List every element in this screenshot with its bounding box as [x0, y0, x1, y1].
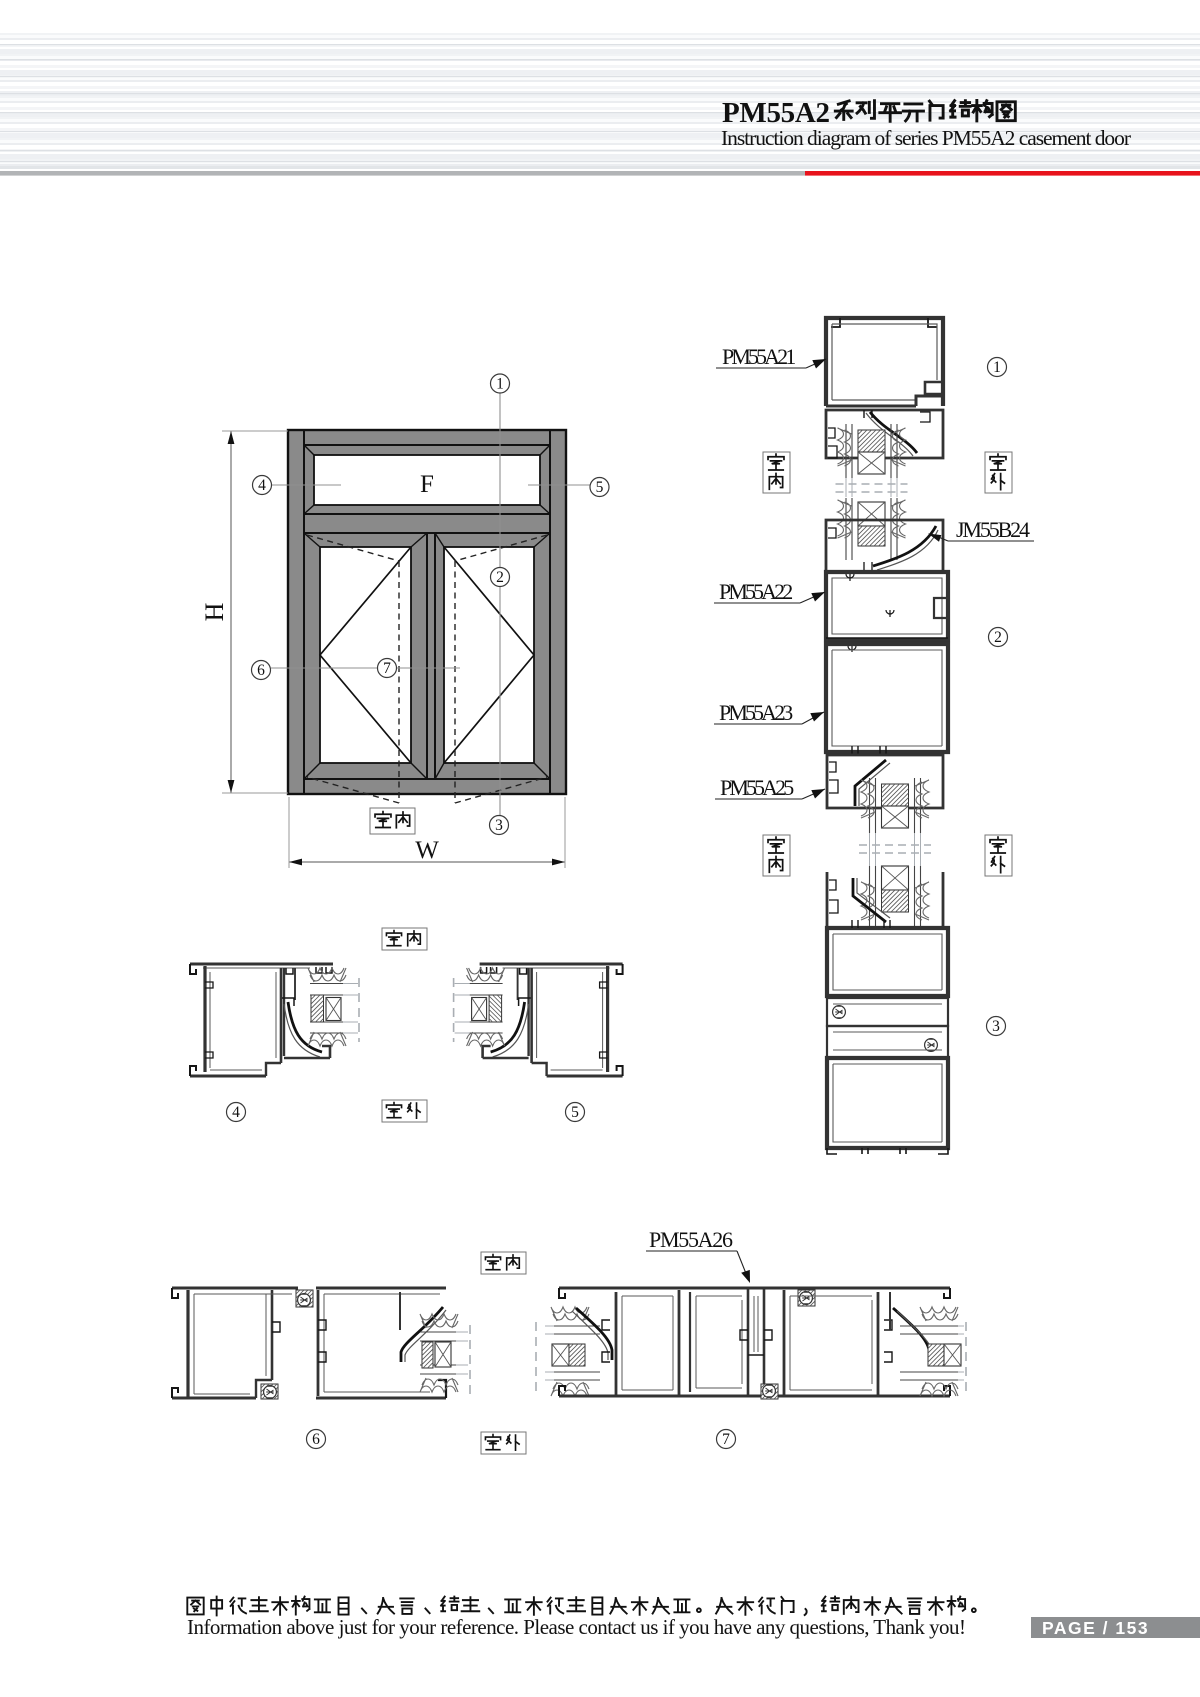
svg-text:PM55A23: PM55A23 — [719, 700, 793, 725]
svg-text:Information above just for you: Information above just for your referenc… — [187, 1615, 966, 1639]
svg-text:PAGE / 153: PAGE / 153 — [1042, 1618, 1149, 1638]
svg-text:PM55A25: PM55A25 — [720, 775, 794, 800]
svg-text:2: 2 — [994, 629, 1002, 646]
svg-text:F: F — [420, 471, 434, 498]
svg-text:JM55B24: JM55B24 — [956, 517, 1030, 542]
svg-text:4: 4 — [258, 477, 266, 494]
svg-text:PM55A26: PM55A26 — [649, 1227, 733, 1252]
svg-text:3: 3 — [992, 1018, 1000, 1035]
svg-text:5: 5 — [571, 1104, 579, 1121]
svg-text:PM55A21: PM55A21 — [722, 344, 796, 369]
svg-text:6: 6 — [257, 662, 265, 679]
svg-text:PM55A22: PM55A22 — [719, 579, 793, 604]
svg-text:1: 1 — [496, 376, 504, 393]
svg-text:PM55A2: PM55A2 — [722, 97, 830, 129]
svg-text:7: 7 — [722, 1431, 730, 1448]
svg-text:7: 7 — [383, 660, 391, 677]
svg-text:5: 5 — [596, 479, 604, 496]
svg-text:2: 2 — [496, 569, 504, 586]
svg-text:W: W — [415, 837, 439, 864]
svg-text:Instruction diagram of series: Instruction diagram of series PM55A2 cas… — [721, 126, 1131, 150]
svg-text:6: 6 — [312, 1431, 320, 1448]
svg-text:4: 4 — [232, 1104, 240, 1121]
svg-text:1: 1 — [993, 359, 1001, 376]
svg-text:H: H — [200, 602, 229, 621]
svg-text:3: 3 — [495, 817, 503, 834]
